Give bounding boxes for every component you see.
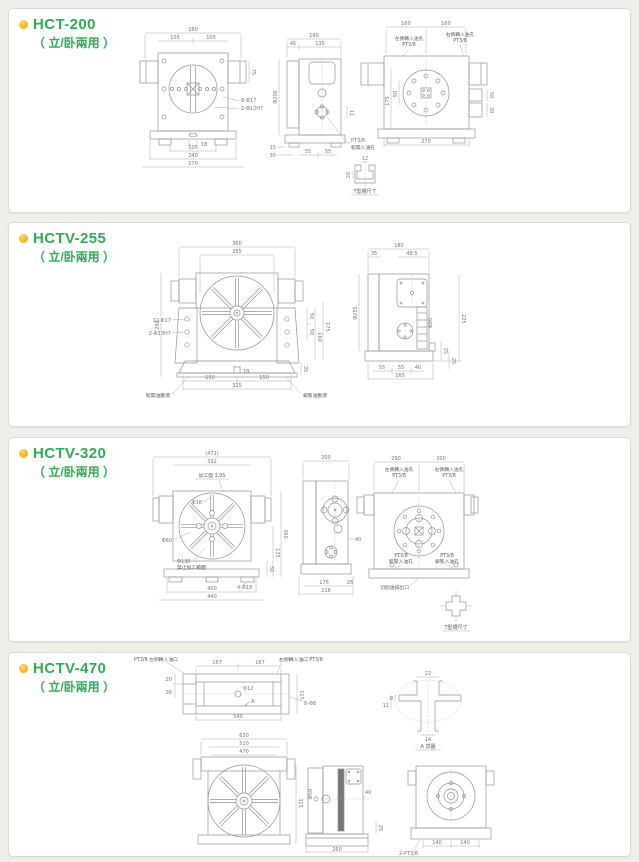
hydraulic-note: 鬆開油壓源 <box>146 392 170 399</box>
dim-label: 15 <box>270 145 276 151</box>
oil-note: PT3/8 <box>442 473 456 479</box>
dim-label: 470 <box>239 749 249 755</box>
dim-label: 260 <box>332 847 342 853</box>
note-label: 8-Φ17 <box>241 98 256 104</box>
panel-header: HCTV-320 （ 立/卧兩用 ） <box>19 445 115 480</box>
dim-label: 167 <box>255 660 265 666</box>
dim-label: 540 <box>233 714 243 720</box>
oil-note: 右側轉入油孔 <box>446 31 475 38</box>
dim-label: 400 <box>207 586 217 592</box>
bullet-icon <box>19 20 28 29</box>
dim-label: Φ255 <box>353 306 359 319</box>
oil-note: PT3/8 左側轉入油口 <box>134 656 178 663</box>
bullet-icon <box>19 234 28 243</box>
labels: (471) 392 加工面 3.0S Φ18 Φ60 Φ130 禁止加工範圍 4… <box>162 451 468 631</box>
dim-label: 50 <box>308 329 314 335</box>
dim-label: Φ50 <box>308 789 314 799</box>
side-view <box>365 274 435 361</box>
model-title: HCTV-255 <box>33 230 106 247</box>
port-label: 鎖緊入油孔 <box>435 558 459 565</box>
marker-label: A <box>251 699 255 705</box>
hydraulic-note: 鎖緊油壓源 <box>303 392 327 399</box>
dim-label: 18 <box>201 142 207 148</box>
dim-label: 105 <box>188 145 198 151</box>
dim-label: 160 <box>401 21 411 27</box>
dim-label: 50 <box>308 313 314 319</box>
dim-label: 11 <box>383 703 389 709</box>
port-label: PT3/8 <box>351 138 365 144</box>
model-title: HCTV-470 <box>33 660 106 677</box>
detail-caption: A 詳圖 <box>420 743 435 750</box>
t-slot-detail <box>446 596 466 616</box>
dim-label: 105 <box>206 35 216 41</box>
port-label: PT3/8 <box>440 553 454 559</box>
oil-note: 左側轉入油孔 <box>395 35 424 42</box>
panel-header: HCTV-255 （ 立/卧兩用 ） <box>19 230 115 265</box>
detail-a <box>399 681 461 731</box>
model-title: HCTV-320 <box>33 445 106 462</box>
dim-label: 150 <box>205 375 215 381</box>
dim-label: 40 <box>415 365 421 371</box>
dim-label: Φ20 <box>428 318 434 328</box>
dim-label: 140 <box>460 840 470 846</box>
dim-label: Φ200 <box>273 90 279 103</box>
dim-label: 200 <box>321 455 331 461</box>
dim-label: 11 <box>348 110 354 116</box>
dim-label: 30 <box>488 107 494 113</box>
note-label: 2-Φ12H7 <box>241 106 263 112</box>
panel-hctv-470: HCTV-470 （ 立/卧兩用 ） <box>8 652 631 857</box>
side-view <box>306 766 368 846</box>
dim-label: 315 <box>297 798 303 808</box>
note-label: 12-Φ17 <box>153 318 171 324</box>
dim-label: 510 <box>239 741 249 747</box>
panel-header: HCT-200 （ 立/卧兩用 ） <box>19 16 115 51</box>
labels: 167 167 540 20 36 115 8-Φ8 Φ12 A PT3/8 左… <box>134 656 470 856</box>
dimension-lines <box>166 662 479 853</box>
dim-label: 20 <box>346 172 352 178</box>
dim-label: Φ130 <box>177 559 190 565</box>
dim-label: 180 <box>394 243 404 249</box>
port-label: 鬆開入油孔 <box>351 144 375 151</box>
dim-label: 290 <box>391 456 401 462</box>
middle-view <box>301 481 351 574</box>
dim-label: Φ12 <box>243 686 253 692</box>
dim-label: 8 <box>390 696 393 702</box>
bullet-icon <box>19 664 28 673</box>
oil-note: PT3/8 <box>392 473 406 479</box>
oil-note: 左側轉入油孔 <box>385 466 414 473</box>
model-title: HCT-200 <box>33 16 96 33</box>
dim-label: Φ18 <box>192 500 202 506</box>
dim-label: 32 <box>268 566 274 572</box>
dim-label: 360 <box>282 529 288 539</box>
dim-label: 140 <box>432 840 442 846</box>
dim-label: 55 <box>305 149 311 155</box>
dim-label: 135 <box>274 548 280 558</box>
dim-label: 392 <box>207 459 217 465</box>
model-subtitle: （ 立/卧兩用 ） <box>33 34 115 51</box>
dim-label: 175 <box>324 322 330 332</box>
dim-label: 325 <box>232 383 242 389</box>
dim-label: 180 <box>309 33 319 39</box>
dim-label: 270 <box>421 139 431 145</box>
dim-label: 225 <box>460 314 466 324</box>
dim-label: 115 <box>298 690 304 700</box>
panel-header: HCTV-470 （ 立/卧兩用 ） <box>19 660 115 695</box>
panel-hctv-255: HCTV-255 （ 立/卧兩用 ） <box>8 222 631 427</box>
dim-label: 218 <box>321 588 331 594</box>
dim-label: 165 <box>395 373 405 379</box>
bullet-icon <box>19 449 28 458</box>
dim-label: 280 <box>188 27 198 33</box>
dim-label: 630 <box>239 733 249 739</box>
dim-label: 360 <box>232 241 242 247</box>
dim-label: 160 <box>316 332 322 342</box>
port-label: PT3/8 <box>394 553 408 559</box>
dim-label: 105 <box>170 35 180 41</box>
port-label: 鬆開入油孔 <box>389 558 413 565</box>
oil-note: PT3/8 <box>453 38 467 44</box>
dim-label: 135 <box>315 41 325 47</box>
dim-label: 48.5 <box>406 251 417 257</box>
dim-label: 20 <box>166 677 172 683</box>
front-view <box>153 491 271 582</box>
note-label: 2-Φ13H7 <box>149 331 171 337</box>
dimension-lines <box>142 27 487 195</box>
drain-note: 切削油排出口 <box>380 584 409 591</box>
dim-label: 26 <box>347 580 353 586</box>
dimension-lines <box>161 247 461 394</box>
dim-label: 36 <box>166 690 172 696</box>
note-label: 8-Φ8 <box>304 701 316 707</box>
dim-label: 12 <box>362 156 368 162</box>
dim-label: 255 <box>232 249 242 255</box>
panel-hctv-320: HCTV-320 （ 立/卧兩用 ） <box>8 437 631 642</box>
note-label: 4-Φ18 <box>237 585 252 591</box>
front-view <box>193 757 295 844</box>
dim-label: 14 <box>425 737 431 743</box>
dim-label: 175 <box>385 96 391 106</box>
dim-label: 50 <box>393 91 399 97</box>
dim-label: 25 <box>450 358 456 364</box>
dim-label: 160 <box>441 21 451 27</box>
dim-label: 440 <box>207 594 217 600</box>
dim-label: 55 <box>398 365 404 371</box>
catalog-page: HCT-200 （ 立/卧兩用 ） <box>0 0 639 862</box>
dim-label: 40 <box>365 790 371 796</box>
dim-label: 240 <box>188 153 198 159</box>
dim-label: 45 <box>290 41 296 47</box>
dim-label: 35 <box>371 251 377 257</box>
range-note: 禁止加工範圍 <box>177 564 206 571</box>
dim-label: 40 <box>355 537 361 543</box>
oil-note: PT3/8 <box>402 42 416 48</box>
dim-label: 176 <box>319 580 329 586</box>
dim-label: 150 <box>259 375 269 381</box>
oil-note: 右側轉入油孔 <box>435 466 464 473</box>
rear-view <box>361 56 487 143</box>
panel-hct-200: HCT-200 （ 立/卧兩用 ） <box>8 8 631 213</box>
dim-label: Φ60 <box>162 538 172 544</box>
dim-label: 18 <box>243 369 249 375</box>
dim-label: 50 <box>488 92 494 98</box>
front-view <box>171 273 303 377</box>
port-label: 2-PT3/8 <box>399 851 418 856</box>
dim-label: 22 <box>425 671 431 677</box>
model-subtitle: （ 立/卧兩用 ） <box>33 248 115 265</box>
dimension-lines <box>153 457 472 631</box>
dim-label: 270 <box>188 161 198 167</box>
surface-note: 加工面 3.0S <box>199 472 226 479</box>
oil-note: 右側轉入油口 PT3/8 <box>279 656 323 663</box>
side-view <box>285 59 345 147</box>
model-subtitle: （ 立/卧兩用 ） <box>33 678 115 695</box>
dim-label: 55 <box>379 365 385 371</box>
dim-label: 167 <box>212 660 222 666</box>
dim-label: 30 <box>270 153 276 159</box>
dim-label: 35 <box>302 366 308 372</box>
dim-label: 55 <box>325 149 331 155</box>
dim-label: 200 <box>436 456 446 462</box>
detail-caption: T型槽尺寸 <box>352 188 376 195</box>
dim-label: 25 <box>442 348 448 354</box>
dim-label: 25 <box>377 825 383 831</box>
dim-label: (471) <box>205 451 218 457</box>
detail-caption: T型槽尺寸 <box>443 624 467 631</box>
dim-label: 75 <box>250 69 256 75</box>
model-subtitle: （ 立/卧兩用 ） <box>33 463 115 480</box>
rear-view <box>357 493 478 578</box>
